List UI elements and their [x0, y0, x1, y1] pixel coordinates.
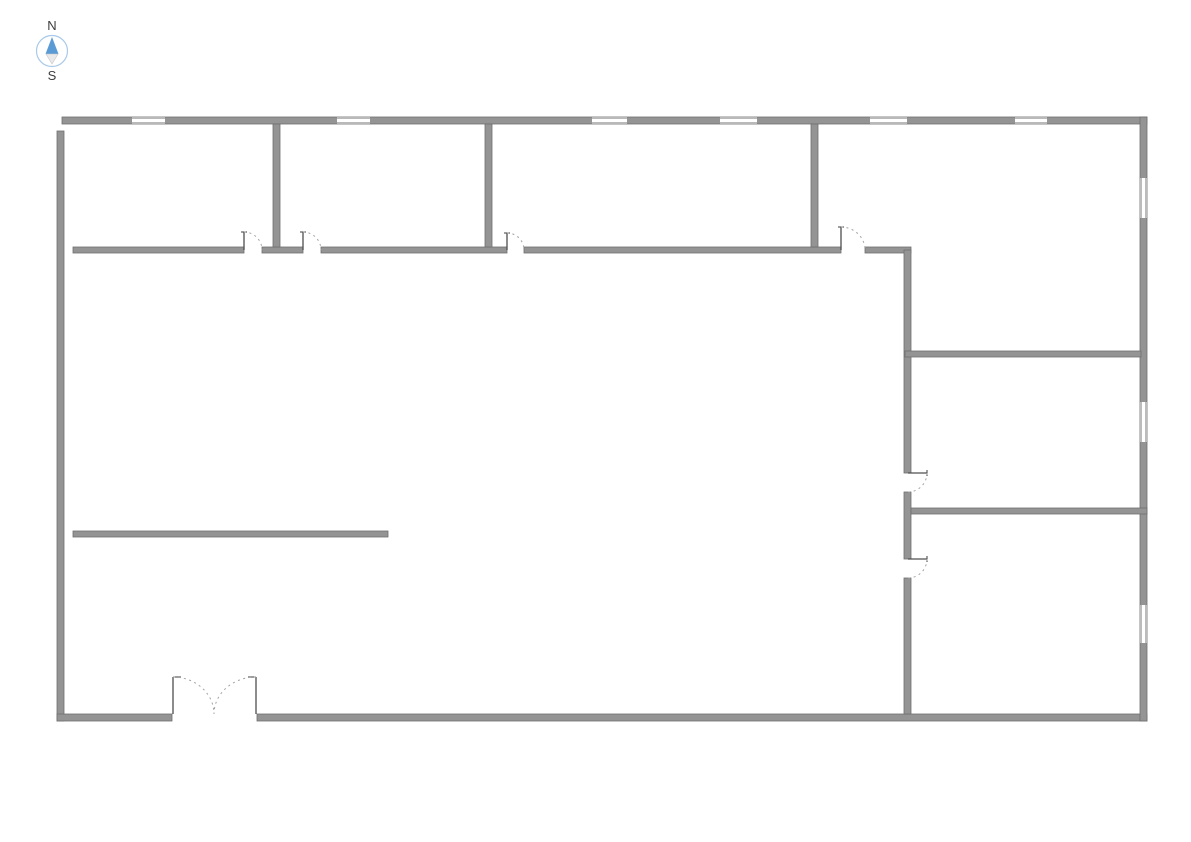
door-swing-arc — [303, 232, 321, 250]
exterior-wall-south-right — [257, 714, 1147, 721]
window-north-6 — [1015, 117, 1047, 124]
door-swing-arc — [841, 227, 865, 250]
window-north-1 — [132, 117, 165, 124]
interior-wall-upper-seg-4 — [524, 247, 841, 253]
door-room4 — [838, 227, 865, 250]
door-swing-arc — [214, 677, 256, 714]
compass-north-label: N — [47, 18, 56, 33]
interior-wall-divider-3 — [811, 124, 818, 247]
door-room1 — [241, 232, 262, 250]
entry-double-door-left — [173, 677, 214, 714]
window-east-1 — [1140, 178, 1147, 218]
door-swing-arc — [908, 473, 927, 492]
door-swing-arc — [908, 559, 927, 578]
floorplan-structure — [57, 117, 1147, 721]
door-right-room-upper — [908, 470, 927, 492]
floorplan-page: N S — [0, 0, 1191, 842]
entry-double-door-right — [214, 677, 256, 714]
compass-south-label: S — [48, 68, 57, 83]
door-swing-arc — [244, 232, 262, 250]
window-north-5 — [870, 117, 907, 124]
door-room2 — [300, 232, 321, 250]
interior-wall-east-seg-3 — [904, 578, 911, 714]
interior-wall-upper-seg-3 — [321, 247, 507, 253]
interior-wall-divider-1 — [273, 124, 280, 247]
interior-wall-east-seg-2 — [904, 492, 911, 559]
interior-wall-upper-seg-1 — [73, 247, 244, 253]
window-north-3 — [592, 117, 627, 124]
compass-rose: N S — [37, 18, 68, 83]
door-swing-arc — [173, 677, 214, 714]
window-north-4 — [720, 117, 757, 124]
interior-wall-right-h1 — [905, 351, 1141, 357]
interior-wall-east-seg-1 — [904, 250, 911, 473]
exterior-wall-west — [57, 131, 64, 721]
door-right-room-lower — [908, 556, 927, 578]
door-room3 — [504, 233, 524, 250]
floorplan-drawing: N S — [0, 0, 1191, 842]
window-east-3 — [1140, 605, 1147, 643]
exterior-wall-south-left — [57, 714, 172, 721]
window-north-2 — [337, 117, 370, 124]
interior-wall-divider-2 — [485, 124, 492, 247]
interior-wall-right-h2 — [911, 508, 1147, 514]
window-east-2 — [1140, 402, 1147, 442]
interior-wall-upper-seg-2 — [262, 247, 303, 253]
door-swing-arc — [507, 233, 524, 250]
interior-wall-partial — [73, 531, 388, 537]
